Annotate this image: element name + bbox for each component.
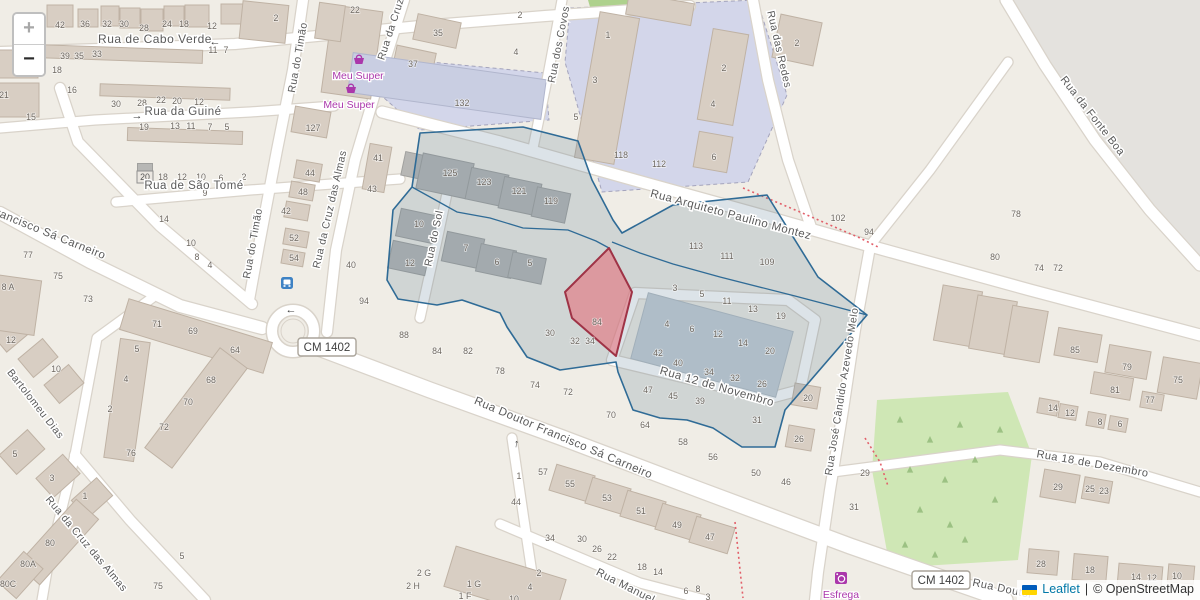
house-number: 32	[570, 336, 580, 346]
house-number: 35	[433, 28, 443, 38]
house-number: 49	[672, 520, 682, 530]
house-number: 20	[803, 393, 813, 403]
house-number: 30	[577, 534, 587, 544]
house-number: 26	[592, 544, 602, 554]
house-number: 1 F	[459, 591, 472, 600]
house-number: 10	[51, 364, 61, 374]
house-number: 3	[50, 473, 55, 483]
house-number: 16	[67, 85, 77, 95]
oneway-arrow-icon: ←	[210, 36, 221, 48]
house-number: 14	[159, 214, 169, 224]
openstreetmap-link[interactable]: © OpenStreetMap	[1093, 582, 1194, 597]
house-number: 118	[614, 150, 628, 160]
house-number: 4	[124, 374, 129, 384]
house-number: 1	[606, 30, 611, 40]
house-number: 34	[585, 336, 595, 346]
house-number: 19	[139, 122, 149, 132]
house-number: 42	[653, 348, 663, 358]
house-number: 94	[864, 227, 874, 237]
house-number: 68	[206, 375, 216, 385]
house-number: 53	[602, 493, 612, 503]
house-number: 57	[538, 467, 548, 477]
house-number: 77	[1145, 395, 1155, 405]
house-number: 33	[92, 49, 102, 59]
house-number: 28	[1036, 559, 1046, 569]
bus-icon-wheel	[284, 285, 286, 287]
house-number: 34	[545, 533, 555, 543]
house-number: 132	[455, 98, 470, 108]
house-number: 84	[592, 317, 602, 327]
bus-icon-glyph	[284, 280, 291, 285]
house-number: 47	[705, 532, 715, 542]
house-number: 82	[463, 346, 473, 356]
house-number: 5	[180, 551, 185, 561]
house-number: 2 G	[417, 568, 431, 578]
house-number: 64	[640, 420, 650, 430]
house-number: 10	[186, 238, 196, 248]
leaflet-map[interactable]: Meu SuperMeu SuperEsfrega423632302824181…	[0, 0, 1200, 600]
house-number: 4	[711, 99, 716, 109]
house-number: 32	[102, 19, 112, 29]
house-number: 3	[706, 592, 711, 600]
road-ref-label: CM 1402	[918, 575, 965, 587]
house-number: 26	[794, 434, 804, 444]
house-number: 123	[477, 177, 492, 187]
house-number: 11	[722, 296, 731, 306]
building	[239, 1, 289, 44]
house-number: 18	[179, 19, 189, 29]
house-number: 1 G	[467, 579, 481, 589]
zoom-out-button[interactable]: −	[14, 45, 44, 75]
building	[221, 4, 243, 24]
attribution-separator: |	[1085, 582, 1088, 597]
house-number: 2	[518, 10, 523, 20]
house-number: 14	[653, 567, 663, 577]
house-number: 70	[606, 410, 616, 420]
house-number: 40	[673, 358, 683, 368]
house-number: 23	[1099, 486, 1109, 496]
laundry-dot	[836, 573, 838, 575]
house-number: 21	[0, 90, 9, 100]
house-number: 4	[665, 319, 670, 329]
house-number: 8	[1098, 417, 1103, 427]
house-number: 80C	[0, 579, 17, 589]
house-number: 119	[544, 196, 558, 206]
house-number: 3	[673, 283, 678, 293]
house-number: 4	[514, 47, 519, 57]
house-number: 3	[593, 75, 598, 85]
street-label: Rua de São Tomé	[144, 180, 243, 192]
bus-icon-wheel	[289, 285, 291, 287]
oneway-arrow-icon: →	[132, 110, 143, 122]
ukraine-flag-icon	[1022, 585, 1037, 595]
house-number: 40	[346, 260, 356, 270]
house-number: 1	[517, 471, 522, 481]
house-number: 48	[298, 187, 308, 197]
house-number: 72	[1053, 263, 1063, 273]
house-number: 34	[704, 367, 714, 377]
house-number: 36	[80, 19, 90, 29]
house-number: 32	[730, 373, 740, 383]
house-number: 7	[208, 122, 213, 132]
house-number: 42	[55, 20, 65, 30]
street-label: Rua de Cabo Verde	[98, 32, 212, 46]
house-number: 14	[1048, 403, 1058, 413]
house-number: 30	[119, 19, 129, 29]
road-ref-label: CM 1402	[304, 342, 351, 354]
house-number: 31	[849, 502, 859, 512]
building	[1086, 412, 1106, 429]
house-number: 37	[408, 59, 418, 69]
house-number: 7	[464, 243, 469, 253]
house-number: 12	[1065, 408, 1075, 418]
landuse-area	[872, 392, 1032, 568]
house-number: 47	[643, 385, 653, 395]
house-number: 5	[528, 258, 533, 268]
house-number: 11	[186, 121, 195, 131]
house-number: 25	[1085, 484, 1095, 494]
house-number: 46	[781, 477, 791, 487]
house-number: 44	[305, 168, 315, 178]
house-number: 80A	[20, 559, 36, 569]
house-number: 15	[26, 112, 36, 122]
house-number: 4	[528, 582, 533, 592]
house-number: 5	[574, 112, 579, 122]
house-number: 75	[153, 581, 163, 591]
street-label: Rua da Guiné	[145, 106, 222, 118]
house-number: 35	[74, 51, 84, 61]
house-number: 24	[162, 19, 172, 29]
house-number: 10	[414, 219, 424, 229]
house-number: 39	[60, 51, 70, 61]
house-number: 70	[183, 397, 193, 407]
house-number: 2	[274, 13, 279, 23]
house-number: 29	[1053, 482, 1063, 492]
house-number: 72	[563, 387, 573, 397]
house-number: 72	[159, 422, 169, 432]
zoom-in-button[interactable]: +	[14, 14, 44, 45]
house-number: 41	[373, 153, 383, 163]
poi-label: Meu Super	[323, 99, 375, 111]
house-number: 2	[795, 38, 800, 48]
house-number: 5	[13, 449, 18, 459]
house-number: 113	[689, 241, 703, 251]
house-number: 12	[713, 329, 723, 339]
house-number: 39	[695, 396, 705, 406]
house-number: 2	[108, 404, 113, 414]
house-number: 29	[860, 468, 870, 478]
house-number: 14	[738, 338, 748, 348]
house-number: 58	[678, 437, 688, 447]
house-number: 30	[111, 99, 121, 109]
house-number: 22	[607, 552, 617, 562]
house-number: 2 H	[406, 581, 420, 591]
house-number: 4	[208, 260, 213, 270]
bus-stop-icon[interactable]	[281, 277, 293, 289]
house-number: 71	[152, 319, 162, 329]
house-number: 8	[195, 252, 200, 262]
house-number: 6	[684, 586, 689, 596]
house-number: 121	[512, 186, 527, 196]
house-number: 88	[399, 330, 409, 340]
house-number: 55	[565, 479, 575, 489]
house-number: 109	[760, 257, 775, 267]
house-number: 75	[53, 271, 63, 281]
house-number: 54	[289, 253, 299, 263]
house-number: 80	[990, 252, 1000, 262]
house-number: 6	[1118, 419, 1123, 429]
house-number: 18	[1085, 565, 1095, 575]
house-number: 19	[776, 311, 786, 321]
house-number: 77	[23, 250, 33, 260]
house-number: 5	[225, 122, 230, 132]
map-canvas[interactable]: Meu SuperMeu SuperEsfrega423632302824181…	[0, 0, 1200, 600]
house-number: 8	[696, 584, 701, 594]
house-number: 50	[751, 468, 761, 478]
house-number: 20	[172, 96, 182, 106]
house-number: 69	[188, 326, 198, 336]
building	[315, 2, 346, 41]
house-number: 2	[722, 63, 727, 73]
house-number: 64	[230, 345, 240, 355]
house-number: 26	[757, 379, 767, 389]
house-number: 6	[690, 324, 695, 334]
house-number: 76	[126, 448, 136, 458]
house-number: 75	[1173, 375, 1183, 385]
house-number: 85	[1070, 345, 1080, 355]
house-number: 18	[637, 562, 647, 572]
oneway-arrow-icon: ←	[286, 304, 297, 316]
house-number: 12	[6, 335, 16, 345]
house-number: 102	[831, 213, 846, 223]
attribution-bar: Leaflet | © OpenStreetMap	[1017, 580, 1200, 600]
house-number: 10	[509, 594, 519, 600]
house-number: 6	[712, 152, 717, 162]
house-number: 78	[1011, 209, 1021, 219]
leaflet-link[interactable]: Leaflet	[1042, 582, 1080, 597]
house-number: 81	[1110, 385, 1120, 395]
house-number: 127	[306, 123, 321, 133]
house-number: 5	[135, 344, 140, 354]
house-number: 1	[83, 491, 88, 501]
house-number: 22	[156, 95, 166, 105]
house-number: 45	[668, 391, 678, 401]
house-number: 78	[495, 366, 505, 376]
house-number: 5	[700, 289, 705, 299]
zoom-control: + −	[12, 12, 46, 77]
house-number: 18	[52, 65, 62, 75]
house-number: 80	[45, 538, 55, 548]
house-number: 74	[1034, 263, 1044, 273]
house-number: 52	[289, 233, 299, 243]
house-number: 56	[708, 452, 718, 462]
house-number: 7	[224, 45, 229, 55]
house-number: 44	[511, 497, 521, 507]
house-number: 12	[207, 21, 217, 31]
house-number: 22	[350, 5, 360, 15]
house-number: 20	[765, 346, 775, 356]
house-number: 84	[432, 346, 442, 356]
poi-label: Esfrega	[823, 589, 859, 600]
house-number: 112	[652, 159, 666, 169]
basket-body	[346, 87, 356, 93]
house-number: 13	[170, 121, 180, 131]
house-number: 43	[367, 184, 377, 194]
house-number: 8 A	[2, 282, 15, 292]
house-number: 94	[359, 296, 369, 306]
house-number: 74	[530, 380, 540, 390]
poi-label: Meu Super	[332, 70, 384, 82]
house-number: 73	[83, 294, 93, 304]
house-number: 125	[443, 168, 458, 178]
house-number: 30	[545, 328, 555, 338]
house-number: 51	[636, 506, 646, 516]
house-number: 31	[752, 415, 762, 425]
basket-body	[354, 58, 364, 64]
house-number: 13	[748, 304, 758, 314]
house-number: 79	[1122, 362, 1132, 372]
house-number: 2	[537, 568, 542, 578]
house-number: 42	[281, 206, 291, 216]
house-number: 111	[720, 251, 733, 261]
house-number: 12	[405, 258, 415, 268]
house-number: 6	[495, 257, 500, 267]
